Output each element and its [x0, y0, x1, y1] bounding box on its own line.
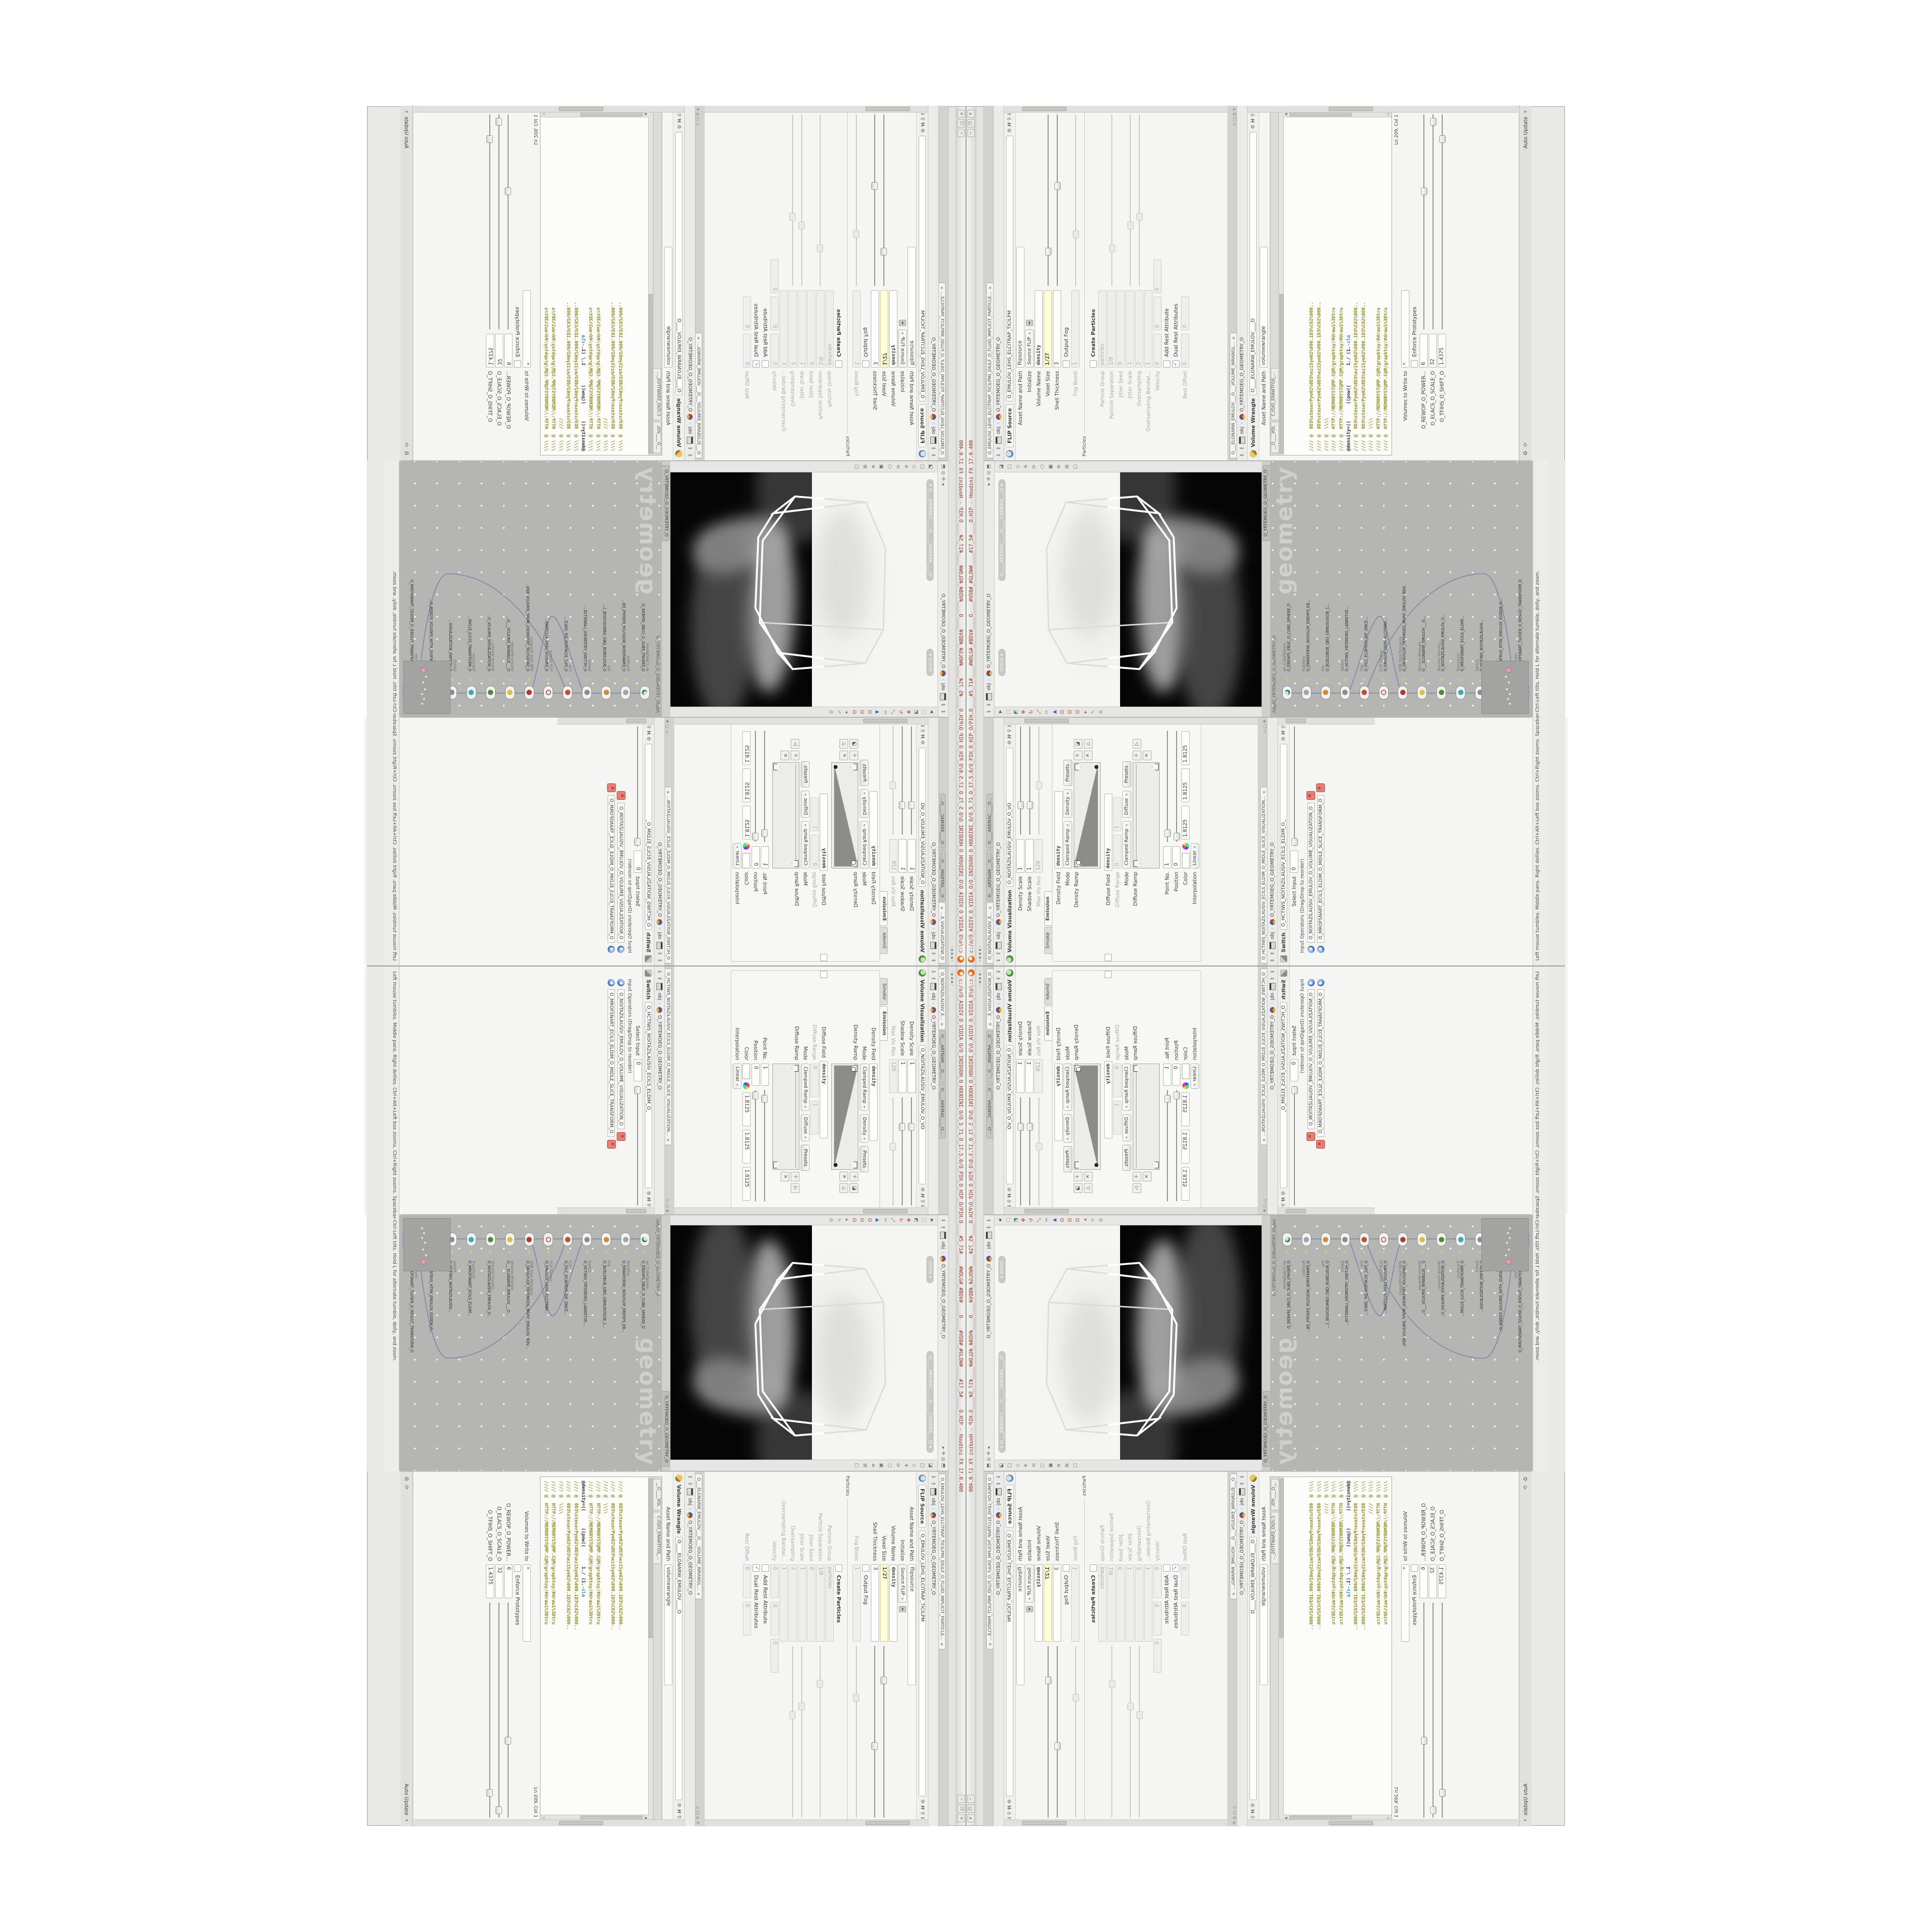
hscript-icon[interactable]: H [1007, 734, 1012, 738]
rest-offset-field2[interactable]: 0 [1181, 297, 1189, 330]
fog-boost-field[interactable]: 1 [852, 290, 861, 368]
gear-icon[interactable]: ⚙ [920, 1799, 925, 1804]
color-g-field[interactable]: 1.8125 [1181, 1130, 1190, 1164]
voxel-size-slider[interactable] [881, 114, 887, 287]
nav-back-icon[interactable]: ⬇ [1239, 453, 1245, 457]
viewport-tool-icon[interactable]: ✂ [882, 710, 887, 714]
node-body[interactable] [621, 686, 630, 699]
scale-field[interactable]: 32 [495, 1564, 503, 1598]
hscript-icon[interactable]: H [920, 1193, 925, 1197]
ramp2-add-point-button[interactable]: ＋ [791, 1172, 799, 1181]
shadow-scale-field[interactable]: 1 [898, 839, 907, 873]
power-slider[interactable] [1421, 114, 1427, 330]
breadcrumb-node[interactable]: O_YRTEMOEG_O_GEOMETRY_O [931, 1015, 936, 1090]
node-flags[interactable] [528, 675, 530, 681]
node-flags[interactable] [1324, 675, 1327, 681]
volume-name-field[interactable]: density [1035, 1564, 1043, 1642]
volvis-scrollbar[interactable] [1004, 1207, 1258, 1214]
node-flags[interactable] [644, 675, 646, 681]
pane-play-icon[interactable]: ▷ [665, 729, 669, 732]
viewport-render-area[interactable]: Ortho ▾ O____AREMAC____O____CAMERA___O ▾ [994, 1225, 1262, 1460]
node-flags[interactable] [1421, 1251, 1423, 1257]
jitter-scale-slider[interactable] [799, 1645, 805, 1818]
breadcrumb-node[interactable]: O_YRTEMOEG_O_GEOMETRY_O [657, 1015, 662, 1090]
jump-to-operator-icon[interactable]: ◀ [608, 979, 615, 986]
volvis-scrollbar[interactable] [674, 718, 928, 724]
viewport-tool-icon[interactable]: ⬚ [1006, 710, 1011, 714]
close-tab-icon[interactable]: ✕ [940, 286, 944, 290]
viewport-tool-icon[interactable]: ➤ [998, 710, 1003, 714]
viewport-tool-icon[interactable]: ≡ [1057, 465, 1062, 469]
network-node[interactable]: Transform O_MROFSNART_ECILS_ELDIM... [1454, 1233, 1467, 1455]
gear-icon[interactable]: ⚙ [1007, 740, 1012, 745]
density-field-value[interactable]: density [1054, 791, 1063, 868]
search-icon[interactable]: ⚲ [676, 113, 682, 116]
viewport-tool-icon[interactable]: ⬚ [921, 1218, 926, 1222]
color-r-field[interactable]: 1.8125 [1181, 1093, 1190, 1126]
viewport-tool-icon[interactable]: ✂ [1045, 1218, 1050, 1222]
position-slider[interactable] [753, 730, 759, 843]
expand-icon[interactable]: ▸ [986, 483, 992, 485]
rest-offset-field[interactable]: 0 [743, 1564, 751, 1598]
voxel-size-slider[interactable] [1045, 114, 1051, 287]
hscript-icon[interactable]: H [1007, 1805, 1012, 1809]
particle-separation-slider[interactable] [817, 114, 824, 287]
viewport-tool-icon[interactable]: ≡ [870, 465, 875, 469]
volumes-to-write-field[interactable]: * [1401, 1564, 1409, 1642]
enforce-prototypes-checkbox[interactable] [514, 360, 521, 368]
node-flags[interactable] [625, 1251, 627, 1257]
network-node[interactable]: Clip O_PILC_ECAFRUS_DIF_DNCE... [561, 1233, 574, 1455]
breadcrumb-context[interactable]: obj [657, 993, 662, 1000]
mode2-dropdown[interactable]: Clamped Ramp▾ [1122, 1064, 1131, 1111]
pane-tab[interactable]: O___ARTNAM___O_...✕ [939, 849, 946, 901]
node-body[interactable] [1398, 1233, 1407, 1246]
input-operator-row[interactable]: ◀ O_NOITAZILAUSIV_EMULOV_O_VOLUME_VISUAL… [616, 718, 626, 966]
viewport-tool-icon[interactable]: ✥ [906, 1218, 910, 1222]
density-field-value[interactable]: density [1054, 1064, 1063, 1141]
viewport-tool-icon[interactable]: ▲ [1052, 710, 1057, 714]
input-operator-row[interactable]: ◀ O_MROFSNART_ECILS_ELDIM_O_MIDLE_SLICE_… [607, 966, 616, 1214]
add-rest-checkbox[interactable] [762, 360, 769, 368]
diffuse-range-max[interactable]: 1 [810, 797, 819, 831]
enforce-prototypes-checkbox[interactable] [514, 1564, 521, 1572]
viewport-tool-icon[interactable]: ▲ [1052, 1218, 1057, 1222]
diffuse-range-min[interactable]: 0 [1113, 835, 1122, 868]
breadcrumb-node[interactable]: O_YRTEMOEG_O_GEOMETRY_O [940, 1264, 946, 1338]
rest-offset-field[interactable]: 0 [743, 334, 751, 368]
viewport-tool-icon[interactable]: Ω [1076, 1218, 1080, 1222]
pane-maximize-icon[interactable]: □ [1232, 1811, 1236, 1815]
info-icon[interactable]: ℹ [1007, 1817, 1012, 1819]
refresh-icon[interactable]: ⟳ [403, 442, 410, 447]
network-node[interactable]: Clip O_PILC_ECAFRUS_DIF_DNCE... [561, 477, 574, 699]
info-icon[interactable]: ℹ [920, 725, 925, 727]
fog-boost-slider[interactable] [853, 1645, 860, 1818]
auto-update-selector[interactable]: Auto Update [404, 117, 410, 149]
particle-group-field[interactable]: particles [1098, 290, 1107, 368]
flip-node-type[interactable]: FLIP Source [918, 1485, 926, 1528]
oversampling-bandwidth-field[interactable]: 1 [1144, 290, 1152, 368]
shift-slider[interactable] [487, 1602, 493, 1818]
node-flags[interactable] [567, 675, 569, 681]
density-scale-slider[interactable] [909, 725, 915, 836]
node-body[interactable] [505, 686, 515, 699]
density-scale-slider[interactable] [1017, 1096, 1023, 1207]
max-vis-res-field[interactable]: 128 [889, 1059, 897, 1093]
nav-up-icon[interactable]: ⬆ [930, 446, 937, 451]
remove-operator-icon[interactable]: ✕ [617, 1132, 625, 1141]
breadcrumb-context[interactable]: obj [931, 1498, 936, 1505]
density-field-value[interactable]: density [869, 791, 878, 868]
window-button[interactable]: ✕ [957, 110, 965, 118]
pane-play-icon[interactable]: ▷ [696, 1807, 700, 1810]
fog-boost-slider[interactable] [853, 114, 860, 287]
jump-to-operator-icon[interactable]: ◀ [618, 946, 625, 953]
ramp-flip-button[interactable]: ◪ [850, 1183, 858, 1193]
gear-icon[interactable]: ⚙ [1281, 1191, 1286, 1195]
scale-field[interactable]: 32 [1429, 334, 1437, 368]
viewport-tool-icon[interactable]: ⤢ [890, 1218, 895, 1222]
gear-icon[interactable]: ⚙ [676, 1803, 682, 1807]
node-body[interactable] [1360, 1233, 1369, 1246]
switch-name-field[interactable]: O_HCTIWS_NOITAZILAUSIV_ECILS_ELDIM_O_ [645, 744, 652, 930]
hscript-icon[interactable]: H [920, 1805, 925, 1809]
velocity-x-field[interactable]: 0 [770, 334, 779, 368]
node-body[interactable] [486, 1233, 496, 1246]
close-tab-icon[interactable]: ✕ [940, 906, 944, 909]
particle-separation-slider[interactable] [817, 1645, 824, 1818]
color-swatch[interactable] [1182, 1064, 1190, 1079]
power-field[interactable]: 6 [1420, 1564, 1428, 1598]
viewport-tool-icon[interactable]: ➤ [929, 710, 934, 714]
volumes-to-write-field[interactable]: * [1401, 290, 1409, 368]
interpolation-dropdown[interactable]: Linear▾ [1191, 843, 1199, 868]
breadcrumb-context[interactable]: obj [931, 426, 936, 434]
node-body[interactable] [543, 686, 553, 699]
pane-maximize-icon[interactable]: □ [665, 724, 669, 728]
nav-back-icon[interactable]: ⬇ [995, 453, 1002, 457]
viewport-tool-icon[interactable]: ⬚ [921, 710, 926, 714]
viewport-tool-icon[interactable]: Ω [859, 1218, 864, 1222]
network-node[interactable]: PolyWire O_EMARFERIW_NOGYLOP_EREHPS_EB..… [1300, 1233, 1313, 1455]
scale-slider[interactable] [1430, 1602, 1436, 1818]
input-operator-row[interactable]: ◀ O_NOITAZILAUSIV_EMULOV_O_VOLUME_VISUAL… [616, 966, 626, 1214]
search-icon[interactable]: ⚲ [646, 1203, 651, 1207]
close-tab-icon[interactable]: ✕ [988, 1643, 993, 1646]
ramp-add-point-button[interactable]: ＋ [1074, 751, 1082, 760]
jump-to-operator-icon[interactable]: ◀ [1317, 979, 1324, 986]
breadcrumb-node[interactable]: O_YRTEMOEG_O_GEOMETRY_O [996, 337, 1001, 412]
info-icon[interactable]: ℹ [1007, 725, 1012, 727]
breadcrumb-context[interactable]: obj [931, 932, 936, 939]
viewport-tool-icon[interactable]: Ω [1060, 1218, 1065, 1222]
nav-back-icon[interactable]: ⬇ [995, 969, 1002, 974]
node-body[interactable] [640, 686, 650, 699]
breadcrumb-node[interactable]: O_YRTEMOEG_O_GEOMETRY_O [687, 337, 693, 412]
pin-icon[interactable]: ✛ [696, 1821, 700, 1824]
select-input-slider[interactable] [1291, 1085, 1297, 1207]
network-node[interactable]: File O_BUSLDBUB_QBO_GBNUSOGOB_1... [600, 477, 612, 699]
velocity-z-field[interactable]: 0 [770, 259, 779, 293]
diffuse-field-checkbox[interactable] [820, 971, 827, 978]
viewport-tool-icon[interactable]: ⊙ [1099, 1218, 1104, 1222]
particle-group-field[interactable]: particles [825, 1564, 834, 1642]
network-node[interactable]: Switch O_HCTIWS_YRTEMOEG_LANRETXE... [1339, 477, 1351, 699]
network-node[interactable]: an_CubeSphere O_EREHPS_EBUC_O_CUBE_SPHER… [639, 477, 651, 699]
viewport-tool-icon[interactable]: ◩ [1014, 710, 1019, 714]
point-no-field[interactable]: 1 [761, 846, 769, 868]
density-scale-field[interactable]: 1 [1016, 1059, 1024, 1093]
color-g-field[interactable]: 1.8125 [742, 1130, 751, 1164]
shadow-scale-slider[interactable] [899, 725, 906, 836]
oversampling-field[interactable]: 2 [789, 290, 797, 368]
wrangle-scrollbar[interactable] [414, 106, 684, 113]
nav-up-icon[interactable]: ⬆ [986, 1225, 992, 1229]
viewport-tool-icon[interactable]: ✛ [903, 465, 908, 469]
viewport-tool-icon[interactable]: □ [920, 1463, 924, 1467]
oversampling-field[interactable]: 2 [1135, 290, 1143, 368]
node-flags[interactable] [1344, 1251, 1346, 1257]
shift-slider[interactable] [1439, 114, 1445, 330]
jitter-seed-field[interactable]: 0 [1117, 290, 1125, 368]
hscript-icon[interactable]: H [920, 734, 925, 738]
flip-node-type[interactable]: FLIP Source [918, 404, 926, 447]
viewport-tool-icon[interactable]: ⊙ [828, 710, 833, 714]
viewport-tool-icon[interactable]: ↻ [1029, 710, 1034, 714]
jitter-scale-field[interactable]: 1 [1126, 1564, 1134, 1642]
nav-up-icon[interactable]: ⬆ [930, 952, 937, 956]
viewport-tool-icon[interactable]: ▢ [1073, 464, 1078, 469]
max-vis-res-field[interactable]: 128 [1035, 839, 1043, 873]
shell-thickness-slider[interactable] [1054, 114, 1060, 287]
ramp2-delete-point-button[interactable]: ✕ [1143, 751, 1151, 760]
expand-icon[interactable]: ▸ [986, 1447, 992, 1449]
add-rest-checkbox[interactable] [762, 1564, 769, 1572]
viewport-tool-icon[interactable]: ↻ [1029, 1218, 1034, 1222]
search-icon[interactable]: ⚲ [920, 1812, 925, 1815]
color-swatch[interactable] [1182, 853, 1190, 868]
viewport-tool-icon[interactable]: ▸ [1083, 710, 1088, 713]
create-particles-checkbox[interactable] [835, 360, 842, 368]
viewport-tool-icon[interactable]: □ [1008, 1463, 1012, 1467]
ramp2-add-point-button[interactable]: ＋ [1133, 1172, 1141, 1181]
network-node[interactable]: FLIP Source O_EMULOV_LEHS_ELCITRAP... [542, 1233, 554, 1455]
close-tab-icon[interactable]: ✕ [696, 1592, 701, 1596]
remove-operator-icon[interactable]: ✕ [607, 784, 616, 793]
ortho-pill[interactable]: Ortho ▾ [926, 649, 934, 676]
viewport-tool-icon[interactable]: ⟳ [895, 1463, 900, 1467]
ramp2-flag-button[interactable]: ▷ [1133, 739, 1141, 749]
expand-icon[interactable]: ▸ [940, 483, 946, 485]
ramp2-add-point-button[interactable]: ＋ [1133, 751, 1141, 760]
node-flags[interactable] [547, 1251, 550, 1257]
color-g-field[interactable]: 1.8125 [742, 768, 751, 802]
ramp2-delete-point-button[interactable]: ✕ [781, 751, 789, 760]
oversampling-slider[interactable] [790, 1645, 796, 1818]
diffuse-field-value[interactable]: density [820, 794, 828, 871]
volume-name-field[interactable]: density [889, 290, 897, 368]
close-tab-icon[interactable]: ✕ [666, 791, 670, 794]
node-body[interactable] [1321, 686, 1331, 699]
input-operator-row[interactable]: ◀ O_NOITAZILAUSIV_EMULOV_O_VOLUME_VISUAL… [1306, 718, 1316, 966]
viewport-tool-icon[interactable]: ⊙ [828, 1218, 833, 1222]
volumes-to-write-field[interactable]: * [523, 290, 531, 368]
target-icon[interactable]: ◎ [696, 113, 700, 116]
pin-icon[interactable]: ✛ [696, 108, 700, 111]
scale-slider[interactable] [496, 1602, 502, 1818]
position-field[interactable]: 0 [1172, 846, 1180, 868]
viewport-tool-icon[interactable]: Ω [852, 1218, 856, 1222]
node-flags[interactable] [1440, 1251, 1443, 1257]
diffuse-field-checkbox[interactable] [1105, 954, 1112, 961]
viewport-tool-icon[interactable]: ◇ [1016, 1463, 1021, 1467]
vex-code[interactable]: //// @ 0D3%steserPym62%0D3%eziSym62%000.… [1284, 1477, 1392, 1821]
flip-pane-tab[interactable]: O_EMULOV_LEHS_ELCITRAP_TICILPMI_DIULF_O_… [939, 1474, 946, 1649]
nav-back-icon[interactable]: ⬇ [1269, 958, 1276, 963]
node-body[interactable] [1456, 686, 1465, 699]
velocity-x-field[interactable]: 0 [770, 1564, 779, 1598]
volume-name-field[interactable]: density [1035, 290, 1043, 368]
network-node[interactable]: VDB from Polygons O_SNOGYLOP_YRTEMOEG_MO… [1396, 477, 1409, 699]
gear-icon[interactable]: ⚙ [1250, 1803, 1256, 1807]
voxel-size-field[interactable]: 1/27 [1044, 290, 1052, 368]
node-flags[interactable] [547, 675, 550, 681]
density-scale-slider[interactable] [1017, 725, 1023, 836]
gear-icon[interactable]: ⚙ [920, 128, 925, 133]
flip-node-name-field[interactable]: O_EMULOV_LEHS_ELCITRAP_TICILPM [1006, 136, 1013, 401]
density-field-value[interactable]: density [869, 1064, 878, 1141]
node-flags[interactable] [1305, 675, 1307, 681]
mode2-dropdown[interactable]: Clamped Ramp▾ [801, 1064, 810, 1111]
editor-tab[interactable]: __O____VOL [653, 422, 661, 453]
shift-field[interactable]: 1.4375 [1438, 334, 1446, 368]
search-icon[interactable]: ⚲ [1007, 1200, 1012, 1203]
network-overview-inset[interactable] [1481, 1218, 1529, 1271]
gear-icon[interactable]: ⚙ [920, 740, 925, 745]
diffuse-range-max[interactable]: 1 [810, 1101, 819, 1135]
node-flags[interactable] [644, 1251, 646, 1257]
pane-split-icon[interactable]: ✥ [665, 720, 669, 723]
breadcrumb-context[interactable]: obj [687, 1498, 693, 1505]
node-body[interactable] [525, 1233, 534, 1246]
network-node[interactable]: FLIP Source O_EMULOV_LEHS_ELCITRAP... [542, 477, 554, 699]
input-operator-row[interactable]: ◀ O_MROFSNART_ECILS_ELDIM_O_MIDLE_SLICE_… [1316, 966, 1325, 1214]
diffuse-range-min[interactable]: 0 [810, 835, 819, 868]
switch-pane-tab[interactable]: O_HCTIWS_NOITAZILAUSIV_ECILS_ELDIM_O_MID… [1260, 787, 1267, 964]
volvis-name-field[interactable]: O_NOITAZILAUSIV_EMULOV_O_VO [919, 1045, 926, 1185]
viewport-tool-icon[interactable]: Ω [1068, 1218, 1073, 1222]
ramp-marker-button[interactable]: △ [1084, 739, 1093, 749]
ramp-delete-point-button[interactable]: ✕ [839, 751, 848, 760]
breadcrumb-node[interactable]: O_YRTEMOEG_O_GEOMETRY_O [931, 337, 936, 412]
viewport-tool-icon[interactable]: ◩ [913, 710, 918, 714]
breadcrumb-context[interactable]: obj [996, 426, 1001, 434]
hscript-icon[interactable]: H [1281, 1197, 1286, 1201]
node-body[interactable] [1379, 686, 1389, 699]
breadcrumb-node[interactable]: O_YRTEMOEG_O_GEOMETRY_O [1239, 1520, 1245, 1595]
max-vis-res-field[interactable]: 128 [889, 839, 897, 873]
editor-tab[interactable]: C:/O/O_ERAWTFOS_... [1271, 368, 1279, 420]
pin-icon[interactable]: ✛ [1232, 1821, 1236, 1824]
mode-dropdown[interactable]: Clamped Ramp▾ [860, 821, 869, 868]
viewport-tool-icon[interactable]: ⟳ [1032, 1463, 1037, 1467]
jitter-seed-field[interactable]: 0 [1117, 1564, 1125, 1642]
node-body[interactable] [582, 1233, 592, 1246]
voxel-size-field[interactable]: 1/27 [1044, 1564, 1052, 1642]
nav-back-icon[interactable]: ⬇ [656, 969, 663, 974]
node-body[interactable] [563, 1233, 572, 1246]
wrangle-pane-tab[interactable]: O___ELGNARW_EMULOV___O___VOLUME_WRANGL..… [1230, 1474, 1236, 1599]
info-icon[interactable]: ℹ [920, 1817, 925, 1819]
node-body[interactable] [1340, 1233, 1350, 1246]
pane-tab[interactable]: O_NOITAZILAUSIV_E...✕ [939, 968, 946, 1030]
volvis-name-field[interactable]: O_NOITAZILAUSIV_EMULOV_O_VO [1006, 748, 1013, 887]
breadcrumb-node[interactable]: O_YRTEMOEG_O_GEOMETRY_O [1239, 337, 1245, 412]
diffuse-ramp-editor[interactable] [1133, 1064, 1160, 1170]
node-body[interactable] [621, 1233, 630, 1246]
network-node[interactable]: Transform O_MROFSNART_ECILS_ELDIM... [465, 1233, 478, 1455]
shell-thickness-field[interactable]: 3 [1053, 290, 1061, 368]
node-body[interactable] [1302, 686, 1311, 699]
viewport-tool-icon[interactable]: ⬡ [887, 465, 892, 469]
color-g-field[interactable]: 1.8125 [1181, 768, 1190, 802]
presets-button[interactable]: Presets [1064, 1146, 1072, 1172]
node-flags[interactable] [509, 1251, 511, 1257]
window-button[interactable]: ✕ [967, 110, 975, 118]
node-flags[interactable] [1460, 675, 1462, 681]
velocity-x-field[interactable]: 0 [1153, 1564, 1162, 1598]
editor-tab[interactable]: C:/O/O_ERAWTFOS_... [653, 1512, 661, 1563]
point-no-field[interactable]: 1 [761, 1064, 769, 1086]
nav-up-icon[interactable]: ⬆ [930, 1481, 937, 1486]
ramp2-flag-button[interactable]: ▷ [791, 1183, 799, 1193]
position-slider[interactable] [1173, 1089, 1179, 1202]
flip-pane-tab[interactable]: O_EMULOV_LEHS_ELCITRAP_TICILPMI_DIULF_O_… [986, 1474, 993, 1649]
nav-back-icon[interactable]: ⬇ [995, 1475, 1002, 1479]
network-node[interactable]: Volume Visualiz... O_NOITAZILAUSIV_EMULO… [1435, 477, 1448, 699]
pane-play-icon[interactable]: ▷ [1263, 1200, 1267, 1203]
nav-up-icon[interactable]: ⬆ [940, 1225, 946, 1229]
ramp-add-point-button[interactable]: ＋ [1074, 1172, 1082, 1181]
breadcrumb-node[interactable]: O_YRTEMOEG_O_GEOMETRY_O [996, 1520, 1001, 1595]
pane-split-icon[interactable]: ✥ [665, 1209, 669, 1212]
input-operator-row[interactable]: ◀ O_MROFSNART_ECILS_ELDIM_O_MIDLE_SLICE_… [607, 718, 616, 966]
input-operator-row[interactable]: ◀ O_MROFSNART_ECILS_ELDIM_O_MIDLE_SLICE_… [1316, 718, 1325, 966]
viewport-tool-icon[interactable]: ⬚ [1006, 1218, 1011, 1222]
tab-smoke[interactable]: Smoke [880, 978, 888, 1005]
network-node[interactable]: File O_BUSLDBUB_QBO_GBNUSOGOB_1... [1320, 1233, 1332, 1455]
presets-button[interactable]: Presets [860, 760, 869, 786]
node-body[interactable] [1417, 686, 1427, 699]
viewport-tool-icon[interactable]: ↻ [898, 1218, 903, 1222]
color-r-field[interactable]: 1.8125 [1181, 806, 1190, 839]
dual-rest-checkbox[interactable]: ✓ [753, 1564, 760, 1572]
node-body[interactable] [1321, 1233, 1331, 1246]
shift-field[interactable]: 1.4375 [486, 1564, 494, 1598]
initialize-spinner[interactable]: ◂▸ [1026, 1606, 1033, 1612]
viewport-tool-icon[interactable]: ◪ [999, 1463, 1004, 1467]
node-body[interactable] [601, 686, 611, 699]
color-wheel-icon[interactable] [743, 1082, 750, 1089]
ramp2-target-dropdown[interactable]: Diffuse▾ [801, 791, 810, 818]
viewport-tool-icon[interactable]: ▢ [1073, 1463, 1078, 1467]
node-flags[interactable] [451, 675, 453, 681]
select-input-field[interactable]: 0 [634, 851, 642, 873]
pane-split-icon[interactable]: ✥ [1263, 720, 1267, 723]
search-icon[interactable]: ⚲ [1281, 1203, 1286, 1207]
ramp-add-point-button[interactable]: ＋ [850, 751, 858, 760]
